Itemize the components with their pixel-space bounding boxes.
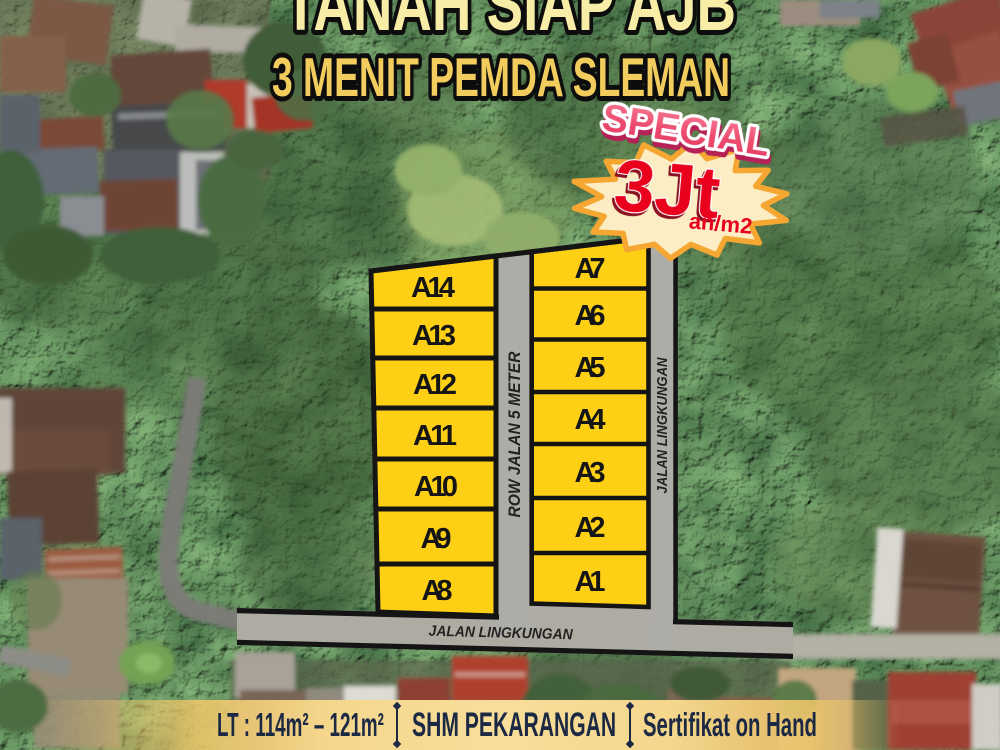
svg-text:TANAH SIAP AJB: TANAH SIAP AJB (284, 0, 736, 46)
svg-text:3 MENIT PEMDA SLEMAN: 3 MENIT PEMDA SLEMAN (272, 46, 730, 108)
